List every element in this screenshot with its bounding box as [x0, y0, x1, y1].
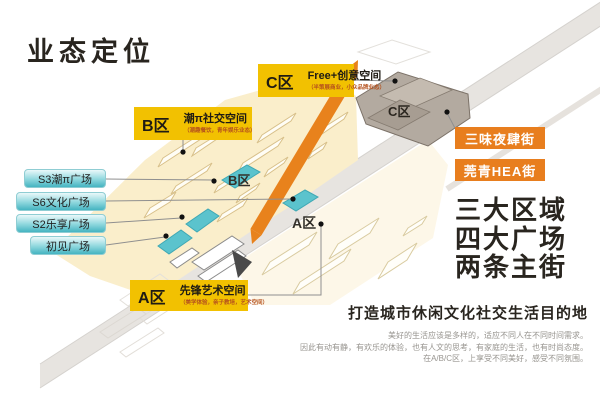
footer-heading: 打造城市休闲文化社交生活目的地 — [258, 302, 588, 323]
summary-block: 三大区域 四大广场 两条主街 — [449, 196, 573, 282]
footer-block: 打造城市休闲文化社交生活目的地 美好的生活应该是多样的，适应不同人在不同时间需求… — [258, 302, 588, 365]
zone-label-a-code: A区 — [138, 284, 166, 308]
street-label-sanwei: 三味夜肆街 — [455, 127, 545, 149]
summary-line-1: 三大区域 — [449, 196, 573, 225]
page-title: 业态定位 — [27, 30, 155, 69]
zone-label-a-name: 先锋艺术空间 — [180, 285, 340, 298]
page-root: C区 B区 A区 业态定位 C区 Free+创意空间 （半策展商业，小众品牌业态… — [0, 0, 600, 401]
plaza-label-s6: S6文化广场 — [16, 192, 106, 211]
map-mark-c: C区 — [388, 104, 410, 119]
zone-label-b-sub: （潮趣餐饮，青年娱乐业态） — [184, 128, 256, 133]
zone-label-c-name: Free+创意空间 — [308, 70, 448, 83]
footer-paragraph-line-3: 在A/B/C区，上享受不同美好，感受不同氛围。 — [258, 353, 588, 365]
zone-label-a: A区 先锋艺术空间 （美学体验，亲子教培，艺术空间） — [130, 280, 248, 311]
plaza-label-chujian: 初见广场 — [30, 236, 106, 255]
summary-line-3: 两条主街 — [449, 253, 573, 282]
map-mark-b: B区 — [228, 173, 250, 188]
footer-paragraph-line-1: 美好的生活应该是多样的，适应不同人在不同时间需求。 — [258, 330, 588, 342]
zone-label-a-sub: （美学体验，亲子教培，艺术空间） — [180, 300, 268, 305]
plaza-label-s2: S2乐享广场 — [16, 214, 106, 233]
footer-paragraph-line-2: 因此有动有静，有欢乐的体验，也有人文的思考，有家庭的生活，也有时尚态度。 — [258, 342, 588, 354]
summary-line-2: 四大广场 — [449, 225, 573, 254]
zone-label-b-code: B区 — [142, 112, 170, 136]
plaza-label-s3: S3潮π广场 — [24, 169, 106, 188]
zone-label-c: C区 Free+创意空间 （半策展商业，小众品牌业态） — [258, 64, 354, 97]
zone-label-c-code: C区 — [266, 69, 294, 93]
zone-label-b: B区 潮π社交空间 （潮趣餐饮，青年娱乐业态） — [134, 107, 252, 140]
map-mark-a: A区 — [292, 215, 316, 231]
zone-label-b-name: 潮π社交空间 — [184, 113, 314, 126]
zone-label-c-sub: （半策展商业，小众品牌业态） — [308, 85, 385, 90]
street-label-guanqing: 莞青HEA街 — [455, 159, 545, 181]
